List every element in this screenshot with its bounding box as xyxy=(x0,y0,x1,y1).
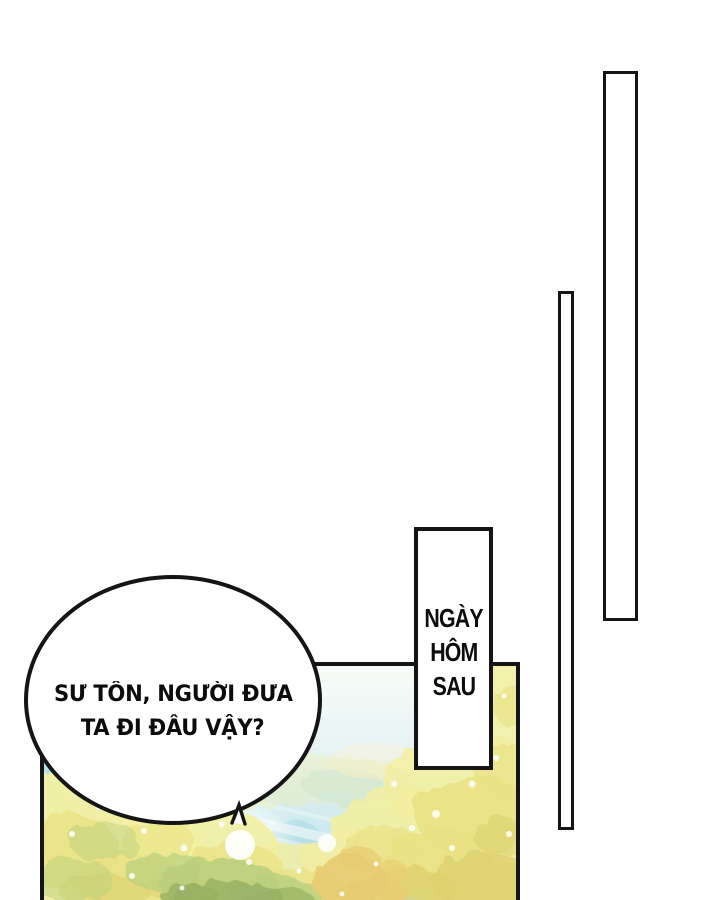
decorative-rect-thin xyxy=(558,291,574,830)
speech-bubble: SƯ TÔN, NGƯỜI ĐƯA TA ĐI ĐÂU VẬY? xyxy=(24,575,322,825)
caption-line-2: HÔM xyxy=(430,635,477,669)
caption-line-1: NGÀY xyxy=(424,601,482,635)
caption-line-3: SAU xyxy=(432,669,475,703)
caption-box: NGÀY HÔM SAU xyxy=(414,527,493,770)
comic-page: NGÀY HÔM SAU SƯ TÔN, NGƯỜI ĐƯA TA ĐI ĐÂU… xyxy=(0,0,720,900)
decorative-rect-tall xyxy=(603,71,638,621)
speech-line-2: TA ĐI ĐÂU VẬY? xyxy=(81,712,264,746)
sun-glow-small xyxy=(318,834,336,852)
sun-glow-core xyxy=(225,830,255,860)
speech-bubble-tail xyxy=(225,797,257,831)
speech-line-1: SƯ TÔN, NGƯỜI ĐƯA xyxy=(54,678,293,712)
